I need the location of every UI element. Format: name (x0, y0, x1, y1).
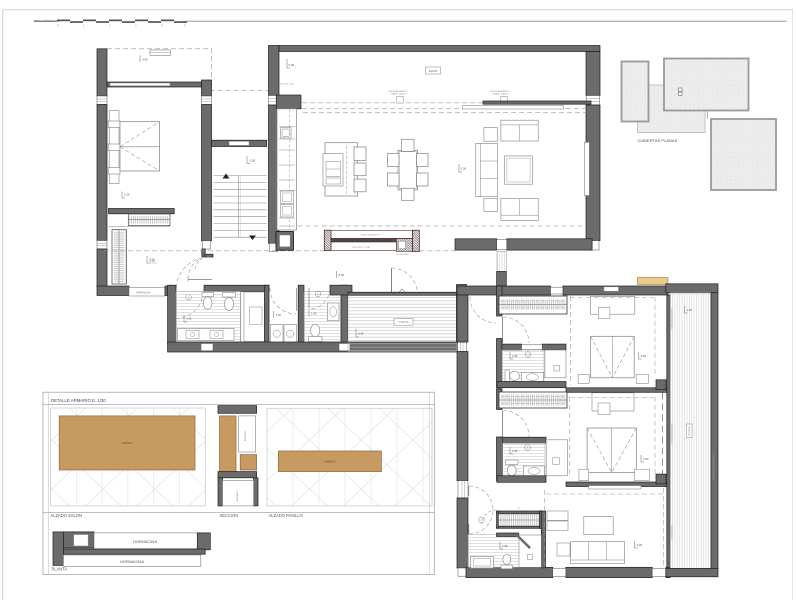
svg-text:ARMARIO: ARMARIO (121, 442, 132, 445)
svg-text:ESCALA GRAFICA 1:100: ESCALA GRAFICA 1:100 (34, 20, 61, 23)
svg-text:ARMARIO: ARMARIO (324, 461, 335, 464)
svg-text:CORREDERA VIDRIO: CORREDERA VIDRIO (671, 308, 674, 330)
svg-text:CORREDERA: CORREDERA (671, 525, 674, 540)
svg-text:PORCHE: PORCHE (399, 322, 409, 324)
svg-text:ALZADO SALON: ALZADO SALON (51, 513, 82, 518)
svg-text:SECCION: SECCION (220, 513, 239, 518)
svg-text:ARMARIO: ARMARIO (236, 491, 239, 502)
svg-text:1.30: 1.30 (687, 308, 693, 312)
svg-text:7.40: 7.40 (276, 313, 282, 317)
svg-text:DETALLE ARMARIO E. 1/30: DETALLE ARMARIO E. 1/30 (51, 398, 106, 403)
svg-text:CORREDERA VIDRIO: CORREDERA VIDRIO (671, 423, 674, 445)
svg-text:1.85: 1.85 (512, 354, 518, 358)
svg-text:VESTIBULO PPAL: VESTIBULO PPAL (352, 246, 371, 249)
svg-text:4.95: 4.95 (186, 317, 192, 321)
svg-text:CUBIERTAS PLANAS: CUBIERTAS PLANAS (638, 139, 678, 143)
svg-text:PLANTA: PLANTA (52, 567, 68, 572)
svg-text:HORNACINA: HORNACINA (120, 559, 144, 564)
svg-text:BARANDILLA DE VIDRIO: BARANDILLA DE VIDRIO (713, 453, 716, 480)
svg-text:ACRISTALAMIENTO: ACRISTALAMIENTO (490, 90, 510, 93)
svg-text:1.98: 1.98 (502, 544, 508, 548)
svg-text:ACRISTALAMIENTO: ACRISTALAMIENTO (389, 90, 409, 93)
svg-text:CUBRE RAD.: CUBRE RAD. (396, 253, 410, 256)
svg-text:0.00: 0.00 (461, 167, 467, 171)
svg-text:HORNACINA: HORNACINA (136, 291, 151, 294)
svg-text:FIJARE CLASICO: FIJARE CLASICO (492, 93, 509, 96)
svg-text:1.08: 1.08 (250, 159, 256, 163)
svg-text:1.85: 1.85 (512, 449, 518, 453)
svg-text:1.10: 1.10 (150, 259, 156, 263)
svg-text:3.60: 3.60 (643, 457, 649, 461)
svg-text:TERRAZA: TERRAZA (688, 426, 691, 436)
svg-text:4.90: 4.90 (142, 58, 148, 62)
svg-text:0.00: 0.00 (289, 63, 295, 67)
svg-text:4.00: 4.00 (637, 543, 643, 547)
svg-text:FIJARE CLASICO: FIJARE CLASICO (391, 93, 408, 96)
svg-text:1.40: 1.40 (311, 312, 317, 316)
svg-text:8.48: 8.48 (358, 332, 364, 336)
svg-text:2.35: 2.35 (124, 193, 130, 197)
svg-text:ALZADO PASILLO: ALZADO PASILLO (269, 513, 303, 518)
svg-text:ARMARIO: ARMARIO (244, 431, 247, 442)
svg-text:SALON: SALON (429, 69, 438, 73)
svg-text:8.48: 8.48 (339, 273, 345, 277)
svg-text:HORNACINA: HORNACINA (133, 539, 157, 544)
svg-text:Nivel de suelo: Nivel de suelo (281, 84, 296, 86)
svg-text:CUBRE RADIADOR: CUBRE RADIADOR (360, 234, 380, 237)
svg-text:3.60: 3.60 (641, 354, 647, 358)
